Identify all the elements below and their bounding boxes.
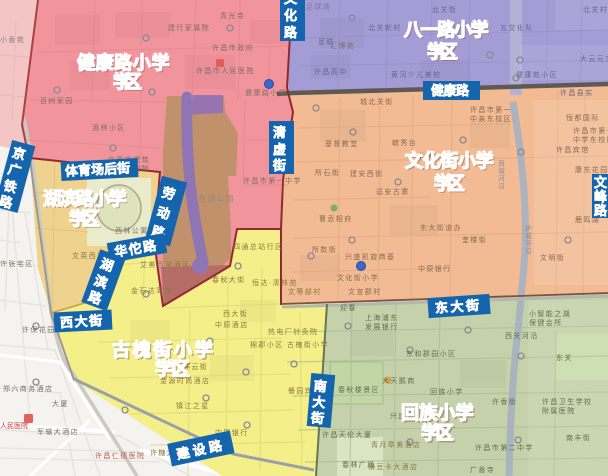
svg-text:许昌市第二中学: 许昌市第二中学 [475,443,534,452]
svg-text:许保花园: 许保花园 [22,325,56,334]
svg-text:基督教堂: 基督教堂 [325,139,359,148]
svg-text:金石达驾校: 金石达驾校 [131,286,173,295]
svg-text:镇江之星: 镇江之星 [176,401,210,410]
svg-text:古槐街小学: 古槐街小学 [112,339,218,360]
svg-text:文明街: 文明街 [540,253,565,262]
svg-text:迎春: 迎春 [340,303,357,312]
svg-text:文峰路: 文峰路 [594,175,608,218]
svg-text:城北关街: 城北关街 [360,97,394,106]
svg-text:军输大酒店: 军输大酒店 [37,427,79,436]
svg-text:春林广场: 春林广场 [342,460,376,469]
svg-text:附属医院: 附属医院 [542,406,576,415]
svg-text:学区: 学区 [427,41,463,62]
svg-text:西大街: 西大街 [223,309,248,318]
svg-text:学区: 学区 [434,173,470,194]
svg-text:许昌仁德医院: 许昌仁德医院 [95,451,145,460]
svg-text:郑六商务酒店: 郑六商务酒店 [3,384,53,393]
svg-text:恒都国际: 恒都国际 [566,113,600,122]
svg-text:健康苑小区: 健康苑小区 [516,70,558,79]
svg-text:逗安古寨: 逗安古寨 [376,187,410,196]
svg-text:上海浦东: 上海浦东 [365,313,399,322]
svg-text:奎楼街: 奎楼街 [462,235,487,244]
svg-text:许昌县实: 许昌县实 [560,88,594,97]
svg-text:酒林小区: 酒林小区 [92,123,126,132]
svg-text:文宣郡村: 文宣郡村 [348,287,382,296]
svg-text:学区: 学区 [155,358,195,379]
svg-text:许昌市政府: 许昌市政府 [212,43,254,52]
svg-text:许昌天伦大厦: 许昌天伦大厦 [322,430,372,439]
svg-text:艾美百货酒区: 艾美百货酒区 [140,260,190,269]
svg-text:兴盛凯旋商基: 兴盛凯旋商基 [345,252,395,261]
svg-text:文化街小学: 文化街小学 [337,273,379,282]
svg-text:回族小学: 回族小学 [401,402,479,423]
svg-text:东关: 东关 [556,353,573,362]
svg-text:古槐街小学: 古槐街小学 [287,340,329,349]
svg-text:人民医院: 人民医院 [0,421,28,430]
svg-text:北关新村: 北关新村 [368,23,402,32]
svg-text:南丰街: 南丰街 [566,433,591,442]
svg-text:足联: 足联 [318,37,335,46]
svg-text:中原酒店: 中原酒店 [215,320,249,329]
svg-text:发展银行: 发展银行 [365,322,399,331]
svg-text:所石街: 所石街 [315,168,340,177]
svg-text:西关河沿: 西关河沿 [505,331,539,340]
svg-text:保健会所: 保健会所 [529,318,563,327]
svg-text:八一路小学: 八一路小学 [404,19,494,40]
svg-text:东大街道办: 东大街道办 [420,223,462,232]
svg-text:文化街小学: 文化街小学 [405,150,499,171]
svg-text:五交化队: 五交化队 [500,23,534,32]
svg-text:大云元宝寨: 大云元宝寨 [580,54,608,63]
svg-text:热电厂针灸院: 热电厂针灸院 [268,327,318,336]
svg-text:西湖公园: 西湖公园 [198,194,236,203]
svg-text:青光寺: 青光寺 [220,11,245,20]
svg-text:学区: 学区 [421,422,459,443]
svg-text:康东花园: 康东花园 [575,165,608,174]
svg-text:湖滨路小学: 湖滨路小学 [43,188,132,209]
svg-text:许昌卫生学校: 许昌卫生学校 [542,397,592,406]
svg-text:四通总站行区: 四通总站行区 [233,242,283,251]
svg-text:许昌市第一: 许昌市第一 [573,126,608,135]
svg-text:健康路: 健康路 [431,83,473,98]
svg-text:许昌市人民医院: 许昌市人民医院 [196,66,255,75]
svg-text:健康路小学: 健康路小学 [77,52,175,73]
svg-text:小香苑: 小香苑 [0,35,25,44]
svg-text:所数街: 所数街 [312,245,337,254]
svg-text:大天鹅商: 大天鹅商 [382,376,416,385]
svg-text:百树家园: 百树家园 [40,96,74,105]
svg-text:恒达·清林苑: 恒达·清林苑 [252,278,298,287]
svg-text:学区: 学区 [113,71,147,92]
svg-text:回族小学: 回族小学 [430,387,464,396]
svg-text:文等部村: 文等部村 [288,287,322,296]
svg-text:春秋大街: 春秋大街 [212,275,246,284]
svg-text:西大街: 西大街 [60,313,107,330]
svg-text:建行家属院: 建行家属院 [168,23,210,32]
svg-text:青月章美酒店: 青月章美酒店 [371,440,421,449]
svg-text:黄河少儿美校: 黄河少儿美校 [391,70,441,79]
svg-text:毓秀台: 毓秀台 [392,138,417,147]
svg-text:广善寺: 广善寺 [470,465,495,474]
svg-text:棉郡小区: 棉郡小区 [250,340,284,349]
svg-text:中原银行: 中原银行 [418,264,452,273]
svg-text:北关村: 北关村 [583,5,608,14]
svg-text:小智能之湖: 小智能之湖 [529,309,571,318]
svg-text:许昌市第一中学: 许昌市第一中学 [243,176,302,185]
svg-text:许张宅区: 许张宅区 [0,259,34,268]
svg-text:建安西街: 建安西街 [350,169,384,178]
svg-text:许香街: 许香街 [492,397,517,406]
svg-text:健康路小学: 健康路小学 [245,88,287,97]
svg-text:足球场: 足球场 [306,2,331,11]
svg-text:春秋楼景区: 春秋楼景区 [338,385,380,394]
svg-text:曹丞相府: 曹丞相府 [319,214,353,223]
svg-text:许昌宾馆: 许昌宾馆 [556,145,590,154]
svg-text:中学东校区: 中学东校区 [573,135,608,144]
svg-text:东和郡园小区: 东和郡园小区 [406,349,456,358]
svg-text:许昌市第一: 许昌市第一 [470,105,512,114]
svg-text:许昌高中: 许昌高中 [314,67,348,76]
svg-text:清虚街: 清虚街 [272,125,290,173]
svg-text:中亲东校区: 中亲东校区 [470,114,512,123]
svg-text:大厦: 大厦 [52,399,69,408]
svg-text:北关街: 北关街 [432,5,457,14]
svg-text:学区: 学区 [69,208,105,229]
